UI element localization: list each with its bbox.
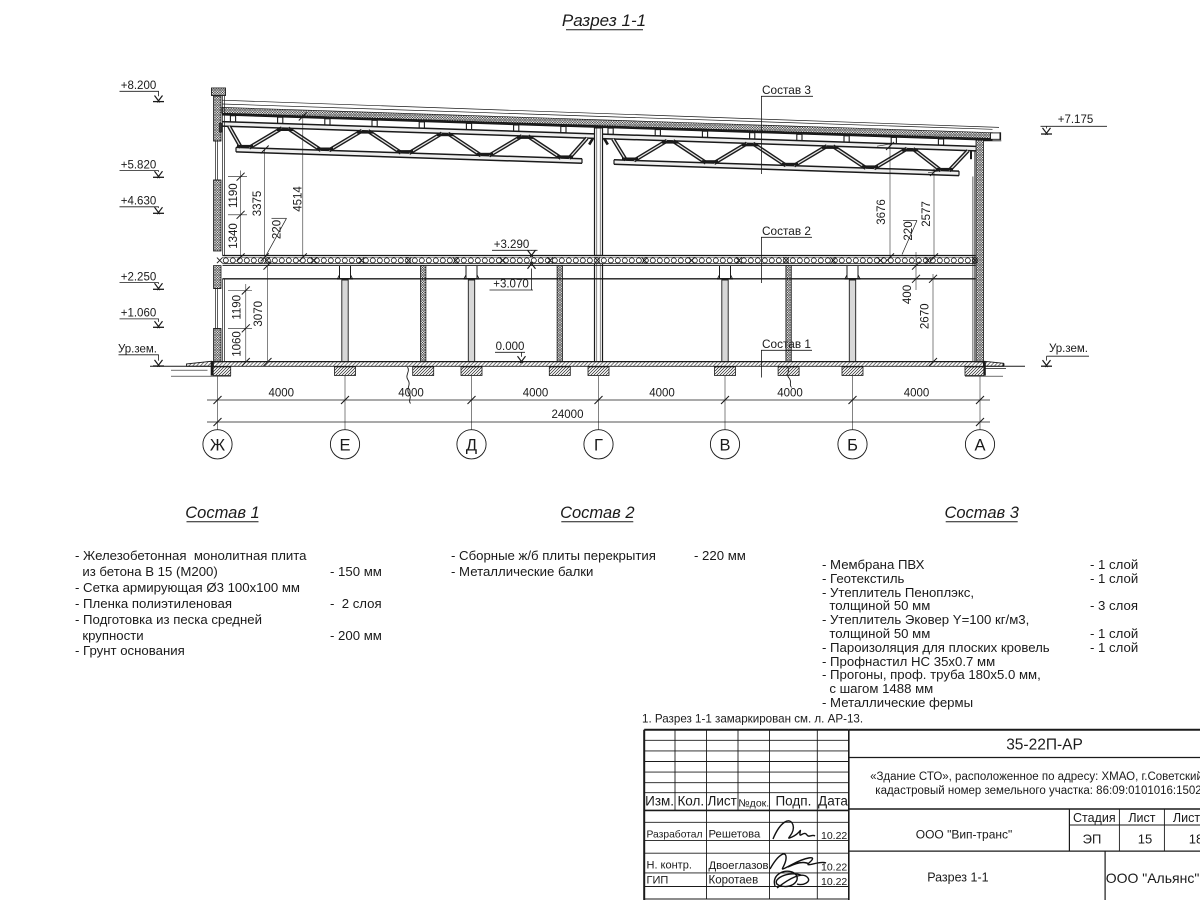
svg-text:1060: 1060: [231, 331, 243, 357]
svg-text:Разрез 1-1: Разрез 1-1: [562, 11, 646, 30]
svg-text:ООО "Альянс": ООО "Альянс": [1106, 870, 1200, 886]
svg-text:4000: 4000: [777, 388, 803, 400]
svg-text:Состав 3: Состав 3: [762, 83, 811, 97]
svg-text:Лист: Лист: [1128, 811, 1155, 825]
svg-text:1. Разрез 1-1 замаркирован см.: 1. Разрез 1-1 замаркирован см. л. АР-13.: [642, 713, 863, 726]
svg-text:Разрез 1-1: Разрез 1-1: [927, 871, 988, 885]
svg-text:220: 220: [272, 220, 284, 239]
svg-text:+3.070: +3.070: [493, 279, 529, 291]
svg-text:1190: 1190: [228, 183, 240, 208]
svg-text:Д: Д: [466, 437, 477, 455]
svg-text:18: 18: [1189, 832, 1200, 847]
svg-text:Г: Г: [594, 437, 603, 455]
svg-text:Н. контр.: Н. контр.: [647, 860, 692, 872]
svg-text:+5.820: +5.820: [121, 159, 157, 171]
svg-text:35-22П-АР: 35-22П-АР: [1006, 737, 1083, 754]
svg-text:«Здание СТО», расположенное по: «Здание СТО», расположенное по адресу: Х…: [870, 771, 1200, 783]
svg-text:4000: 4000: [523, 388, 549, 400]
svg-text:4000: 4000: [904, 388, 930, 400]
svg-text:А: А: [974, 437, 985, 455]
svg-text:1190: 1190: [231, 295, 243, 320]
svg-text:Решетова: Решетова: [709, 829, 761, 841]
svg-text:кадастровый номер земельного у: кадастровый номер земельного участка: 86…: [875, 785, 1200, 797]
svg-text:+7.175: +7.175: [1058, 114, 1094, 126]
svg-text:24000: 24000: [552, 409, 584, 421]
svg-text:+8.200: +8.200: [121, 80, 157, 92]
svg-text:Подп.: Подп.: [775, 794, 811, 809]
svg-text:10.22: 10.22: [821, 830, 847, 842]
svg-text:4000: 4000: [398, 388, 424, 400]
svg-text:Лист: Лист: [708, 794, 737, 809]
svg-text:Кол.: Кол.: [677, 794, 704, 809]
svg-text:Двоеглазов: Двоеглазов: [709, 860, 769, 872]
svg-text:Состав 1: Состав 1: [185, 504, 259, 522]
svg-text:Дата: Дата: [818, 794, 848, 809]
svg-text:10.22: 10.22: [821, 876, 847, 888]
svg-text:15: 15: [1138, 832, 1152, 847]
svg-text:3070: 3070: [253, 301, 265, 327]
svg-text:400: 400: [902, 285, 914, 304]
svg-text:Лист: Лист: [1173, 811, 1200, 825]
svg-text:Ур.зем.: Ур.зем.: [118, 344, 157, 356]
svg-text:4514: 4514: [293, 186, 305, 212]
svg-text:В: В: [719, 437, 730, 455]
svg-text:Стадия: Стадия: [1073, 811, 1116, 825]
svg-text:Состав 1: Состав 1: [762, 337, 811, 351]
svg-text:Б: Б: [847, 437, 858, 455]
svg-text:+2.250: +2.250: [121, 271, 157, 283]
svg-text:Состав 2: Состав 2: [560, 504, 634, 522]
svg-text:Ур.зем.: Ур.зем.: [1049, 343, 1088, 355]
svg-text:+1.060: +1.060: [121, 308, 157, 320]
svg-text:2577: 2577: [921, 201, 933, 227]
svg-text:Ж: Ж: [210, 437, 226, 455]
svg-text:1340: 1340: [228, 223, 240, 249]
svg-text:ООО "Вип-транс": ООО "Вип-транс": [916, 828, 1013, 842]
svg-text:Состав 3: Состав 3: [944, 504, 1019, 522]
svg-text:3375: 3375: [252, 191, 264, 217]
svg-text:4000: 4000: [269, 388, 295, 400]
svg-text:0.000: 0.000: [496, 341, 525, 353]
svg-text:Е: Е: [339, 437, 350, 455]
svg-text:№док.: №док.: [738, 798, 769, 810]
svg-text:4000: 4000: [649, 388, 675, 400]
svg-text:Изм.: Изм.: [645, 794, 674, 809]
svg-text:Разработал: Разработал: [647, 829, 703, 841]
svg-text:2670: 2670: [920, 304, 932, 330]
svg-text:Состав 2: Состав 2: [762, 224, 811, 238]
svg-text:3676: 3676: [876, 199, 888, 225]
svg-text:ГИП: ГИП: [647, 875, 669, 887]
svg-text:+3.290: +3.290: [494, 239, 530, 251]
svg-text:+4.630: +4.630: [121, 196, 157, 208]
svg-text:ЭП: ЭП: [1083, 832, 1102, 847]
svg-text:Коротаев: Коротаев: [709, 875, 759, 887]
